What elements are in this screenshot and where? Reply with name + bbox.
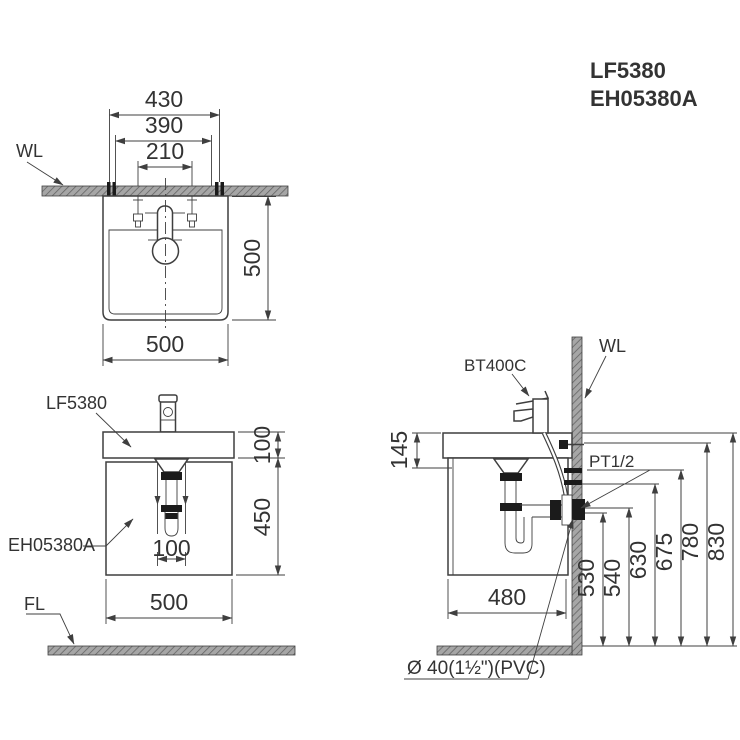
wl-label-side: WL (599, 336, 626, 356)
side-view: BT400C WL PT1/2 145 480 (386, 336, 737, 679)
dim-145-text: 145 (386, 431, 412, 469)
dim-210: 210 (138, 138, 192, 186)
basin-slab (103, 432, 234, 458)
front-view: 430 390 210 500 500 (16, 86, 288, 366)
cabinet-side (412, 458, 568, 575)
dim-500-height: 500 (232, 196, 276, 320)
drawing-svg: 430 390 210 500 500 (0, 0, 740, 740)
basin-front (103, 178, 228, 332)
wl-label: WL (16, 141, 43, 161)
dim-100-basin-text: 100 (249, 426, 275, 464)
wall-line-callout-side: WL (585, 336, 626, 398)
dim-500-cabinet-text: 500 (150, 589, 188, 615)
fl-label: FL (24, 594, 45, 614)
dim-450-text: 450 (249, 498, 275, 536)
dim-100-drain-text: 100 (152, 535, 190, 561)
bt400c-label: BT400C (464, 356, 526, 375)
dim-540-text: 540 (599, 559, 625, 597)
title-block: LF5380 EH05380A (590, 58, 698, 111)
eh05380a-label: EH05380A (8, 535, 95, 555)
floor-section-side (437, 646, 572, 655)
dim-480: 480 (448, 579, 566, 619)
faucet-side (514, 391, 548, 433)
wall-section-side (572, 337, 582, 655)
dim-530-text: 530 (573, 559, 599, 597)
dim-430-text: 430 (145, 86, 183, 112)
dim-145: 145 (386, 431, 441, 469)
floor-line-callout: FL (24, 594, 74, 644)
dim-500-width: 500 (103, 324, 228, 366)
dim-210-text: 210 (146, 138, 184, 164)
lf5380-label: LF5380 (46, 393, 107, 413)
wall-section-bar (42, 186, 288, 196)
dim-675-text: 675 (651, 533, 677, 571)
pvc-label: Ø 40(1½")(PVC) (407, 658, 546, 679)
faucet-callout: BT400C (464, 356, 529, 396)
cabinet-view: 100 100 450 500 LF5380 EH05380A (8, 393, 295, 655)
dim-450: 450 (236, 458, 285, 575)
dim-780-text: 780 (677, 523, 703, 561)
dim-480-text: 480 (488, 584, 526, 610)
supply-callout: PT1/2 (581, 452, 650, 508)
title-model-2: EH05380A (590, 86, 698, 111)
floor-section-bar (48, 646, 295, 655)
dim-630-text: 630 (625, 541, 651, 579)
installation-drawing: 430 390 210 500 500 (0, 0, 740, 740)
faucet-cabinet (159, 395, 177, 432)
title-model-1: LF5380 (590, 58, 666, 83)
dim-830-text: 830 (703, 523, 729, 561)
dim-500-height-text: 500 (239, 239, 265, 277)
wall-line-callout: WL (16, 141, 63, 185)
dim-390-text: 390 (145, 112, 183, 138)
pt12-label: PT1/2 (589, 452, 634, 471)
dim-500-width-text: 500 (146, 331, 184, 357)
dim-500-cabinet: 500 (106, 579, 232, 624)
